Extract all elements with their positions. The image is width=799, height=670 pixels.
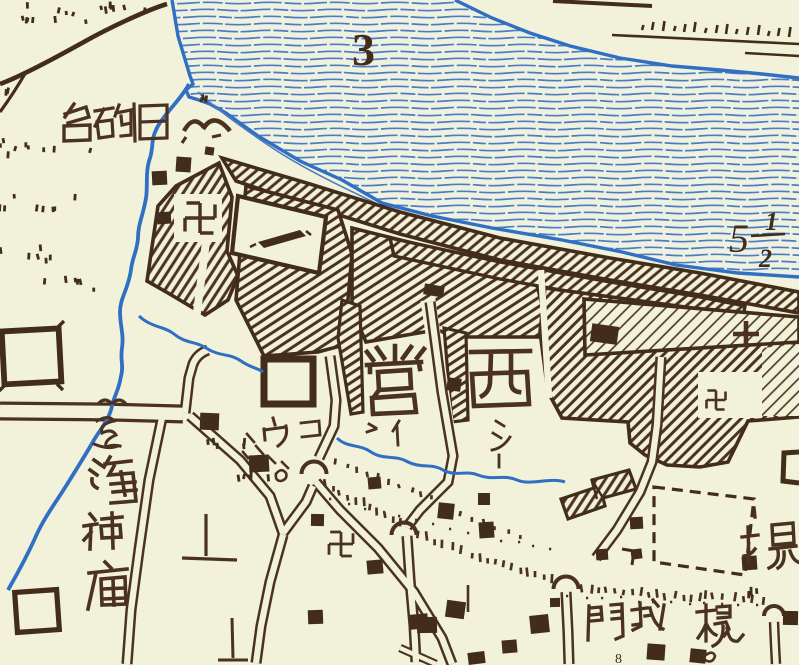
svg-text:5: 5 [729, 216, 749, 261]
svg-text:3: 3 [352, 24, 375, 75]
svg-text:2: 2 [758, 244, 772, 273]
svg-text:1: 1 [765, 207, 778, 236]
svg-text:8: 8 [615, 652, 622, 665]
